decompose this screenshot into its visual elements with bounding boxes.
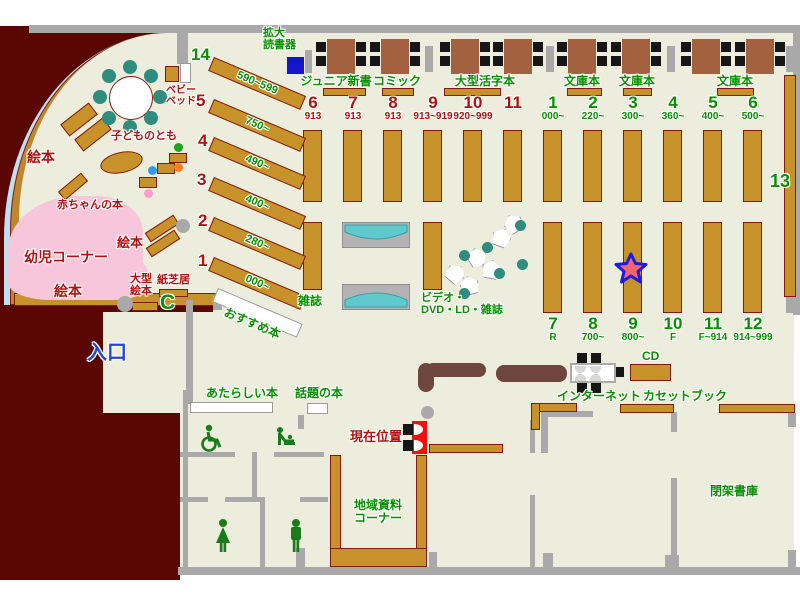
marker-block-bottom xyxy=(403,440,413,451)
stack-column-bottom-8 xyxy=(583,222,602,313)
round-table-chair xyxy=(102,69,116,83)
table-chair xyxy=(356,56,366,66)
table-chair xyxy=(410,42,420,52)
round-table-chair xyxy=(144,111,158,125)
column-pillar-3 xyxy=(421,406,434,419)
restroom-wall-h5 xyxy=(300,497,328,502)
play-dot xyxy=(148,166,157,175)
column-range: 914~999 xyxy=(730,333,776,343)
restroom-wall-v1 xyxy=(252,452,257,502)
you-are-here-star xyxy=(614,251,648,285)
table-chair xyxy=(651,42,661,52)
play-dot xyxy=(174,163,183,172)
internet-chair xyxy=(591,353,601,363)
baby-bed-bench xyxy=(165,66,179,82)
table-chair xyxy=(493,56,503,66)
table-chair xyxy=(681,42,691,52)
play-dot xyxy=(144,189,153,198)
table-chair xyxy=(480,42,490,52)
stack-column-head-12: 6500~ xyxy=(730,94,776,122)
round-table-chair xyxy=(93,90,107,104)
diagonal-shelf-number-14: 14 xyxy=(191,46,210,64)
table-chair xyxy=(533,56,543,66)
marker-block-top xyxy=(403,424,413,435)
c-shaped-stand-icon: C xyxy=(160,292,175,315)
restroom-wall-v2 xyxy=(260,497,265,567)
wall-shelf-13-label: 13 xyxy=(770,172,790,191)
stacks-right-stub xyxy=(788,413,796,427)
internet-label: インターネット xyxy=(557,390,641,403)
internet-terminal-4 xyxy=(590,374,601,381)
table-chair xyxy=(533,42,543,52)
diagonal-shelf-number-2: 2 xyxy=(198,212,207,230)
step-shelf-3 xyxy=(139,177,157,188)
av-column xyxy=(423,222,442,290)
table-chair xyxy=(370,56,380,66)
stack-column-top-5 xyxy=(463,130,482,202)
baby-bed-label: ベビー ベッド xyxy=(166,86,196,108)
av-carrel-stool xyxy=(482,242,493,253)
av-media-label: ビデオ・ DVD・LD・雑誌 xyxy=(421,293,503,317)
restroom-wall-h1 xyxy=(180,452,235,457)
reading-table-1 xyxy=(327,39,355,74)
stack-column-top-10 xyxy=(663,130,682,202)
entrance-label: 入口 xyxy=(87,343,127,365)
category-label-1: ジュニア新書 xyxy=(300,75,371,88)
play-dot xyxy=(174,143,183,152)
mens-toilet-icon xyxy=(286,518,306,554)
magazine-rack-top xyxy=(342,222,410,248)
category-label-3: 大型活字本 xyxy=(455,75,515,88)
womens-toilet-icon xyxy=(213,518,233,554)
category-label-6: 文庫本 xyxy=(717,75,753,88)
baby-books-label: 赤ちゃんの本 xyxy=(57,200,123,212)
internet-chair xyxy=(577,353,587,363)
av-carrel-stool xyxy=(494,268,505,279)
current-position-label: 現在位置 xyxy=(350,430,402,444)
magnifier-device xyxy=(287,57,304,74)
table-chair xyxy=(775,56,785,66)
table-chair xyxy=(651,56,661,66)
stack-column-top-9 xyxy=(623,130,642,202)
round-table-chair xyxy=(144,69,158,83)
round-table-chair xyxy=(102,111,116,125)
table-chair xyxy=(721,56,731,66)
diagonal-shelf-number-1: 1 xyxy=(198,252,207,270)
stacks-wall-v1 xyxy=(671,412,677,432)
local-materials-wall-bottom xyxy=(330,548,427,567)
cd-label: CD xyxy=(642,350,659,363)
restroom-wall-h3 xyxy=(180,497,208,502)
library-floor-map: ジュニア新書コミック大型活字本文庫本文庫本文庫本6913791389139913… xyxy=(0,0,800,600)
stack-column-top-12 xyxy=(743,130,762,202)
cd-shelf xyxy=(630,364,671,381)
table-chair xyxy=(410,56,420,66)
reading-table-8 xyxy=(746,39,774,74)
stack-column-top-7 xyxy=(543,130,562,202)
stack-column-top-3 xyxy=(383,130,402,202)
wall-stub-babybed xyxy=(177,33,188,64)
table-chair xyxy=(611,56,621,66)
pillar-3 xyxy=(667,46,675,72)
table-chair xyxy=(316,42,326,52)
baby-bed xyxy=(180,63,191,83)
stack-column-top-8 xyxy=(583,130,602,202)
sofa-3 xyxy=(496,365,567,382)
kamishibai-label: 紙芝居 xyxy=(157,275,190,287)
new-books-shelf xyxy=(190,402,273,413)
round-table-chair xyxy=(153,90,167,104)
counter-shelf xyxy=(429,444,503,453)
table-chair xyxy=(775,42,785,52)
reading-table-5 xyxy=(568,39,596,74)
table-chair xyxy=(721,42,731,52)
stack-column-top-1 xyxy=(303,130,322,202)
bottom-wall xyxy=(178,567,800,575)
table-chair xyxy=(557,56,567,66)
av-carrel-stool xyxy=(515,220,526,231)
cassette-books-label: カセットブック xyxy=(643,390,727,403)
diagonal-shelf-number-4: 4 xyxy=(198,132,207,150)
corner-wall-v xyxy=(541,411,548,453)
magazine-rack-bottom xyxy=(342,284,410,310)
table-chair xyxy=(735,42,745,52)
pillar-1 xyxy=(425,46,433,72)
top-wall xyxy=(29,25,800,33)
category-label-2: コミック xyxy=(373,75,421,88)
stack-column-top-4 xyxy=(423,130,442,202)
stack-column-bottom-11 xyxy=(703,222,722,313)
new-books-label: あたらしい本 xyxy=(206,387,278,400)
picture-books-label-1: 絵本 xyxy=(27,150,55,165)
reading-table-3 xyxy=(451,39,479,74)
stack-column-bottom-12 xyxy=(743,222,762,313)
topic-books-shelf xyxy=(307,403,328,414)
table-chair xyxy=(356,42,366,52)
table-chair xyxy=(611,42,621,52)
corner-shelf-v xyxy=(531,403,540,430)
wall-stub-magnifier xyxy=(305,50,312,73)
sofa-2 xyxy=(426,363,486,377)
large-picture-books-label: 大型 絵本 xyxy=(130,274,152,298)
column-number: 12 xyxy=(730,315,776,332)
step-shelf-1 xyxy=(169,153,187,163)
stack-column-top-6 xyxy=(503,130,522,202)
table-chair xyxy=(480,56,490,66)
bottom-stub-2 xyxy=(543,553,553,567)
stack-column-top-2 xyxy=(343,130,362,202)
pillar-4 xyxy=(786,46,794,72)
magazine-label: 雑誌 xyxy=(298,295,322,308)
table-chair xyxy=(557,42,567,52)
infant-corner-label: 幼児コーナー xyxy=(24,250,108,265)
diagonal-shelf-number-5: 5 xyxy=(196,92,205,110)
bottom-stub-4 xyxy=(788,550,796,567)
kodomonotomo-label: 子どものとも xyxy=(111,131,177,143)
round-table-chair xyxy=(123,60,137,74)
reading-table-6 xyxy=(622,39,650,74)
step-shelf-2 xyxy=(157,163,175,174)
magnifier-label: 拡大 読書器 xyxy=(263,28,296,52)
table-chair xyxy=(681,56,691,66)
topic-books-label: 話題の本 xyxy=(295,387,343,400)
table-chair xyxy=(597,42,607,52)
reading-table-4 xyxy=(504,39,532,74)
stack-column-bottom-7 xyxy=(543,222,562,313)
category-label-4: 文庫本 xyxy=(564,75,600,88)
diagonal-shelf-number-3: 3 xyxy=(197,171,206,189)
internet-terminal-3 xyxy=(575,374,586,381)
table-chair xyxy=(370,42,380,52)
bottom-stub-1 xyxy=(429,552,437,567)
entrance-corridor-wall xyxy=(186,300,193,404)
av-carrel-stool xyxy=(459,250,470,261)
closed-stacks-label: 閉架書庫 xyxy=(710,485,758,498)
stack-column-bottom-head-12: 12914~999 xyxy=(730,315,776,343)
internet-chair xyxy=(615,367,624,377)
cassette-shelf-1 xyxy=(620,404,674,413)
reading-table-7 xyxy=(692,39,720,74)
baby-change-icon xyxy=(272,426,302,453)
large-picture-books-shelf xyxy=(132,302,158,311)
table-chair xyxy=(597,56,607,66)
column-range: 500~ xyxy=(730,112,776,122)
pillar-2 xyxy=(546,46,554,72)
table-chair xyxy=(493,42,503,52)
picture-books-label-3: 絵本 xyxy=(54,284,82,299)
table-chair xyxy=(440,42,450,52)
picture-books-label-2: 絵本 xyxy=(117,236,143,250)
wheelchair-icon xyxy=(197,424,225,452)
column-pillar-2 xyxy=(117,296,133,312)
column-number: 6 xyxy=(730,94,776,111)
local-materials-label: 地域資料 コーナー xyxy=(352,499,404,525)
stack-column-top-11 xyxy=(703,130,722,202)
restroom-wall-h4 xyxy=(225,497,263,502)
center-wall-v2 xyxy=(530,495,535,567)
table-chair xyxy=(440,56,450,66)
bottom-stub-3 xyxy=(665,555,679,567)
stack-column-bottom-10 xyxy=(663,222,682,313)
table-chair xyxy=(735,56,745,66)
table-chair xyxy=(316,56,326,66)
cassette-shelf-2 xyxy=(719,404,795,413)
column-range: 920~999 xyxy=(450,112,496,122)
restroom-left-wall xyxy=(183,390,188,567)
category-label-5: 文庫本 xyxy=(619,75,655,88)
column-pillar-1 xyxy=(176,219,190,233)
av-carrel-stool xyxy=(517,259,528,270)
reading-table-2 xyxy=(381,39,409,74)
stacks-wall-v2 xyxy=(671,478,677,567)
